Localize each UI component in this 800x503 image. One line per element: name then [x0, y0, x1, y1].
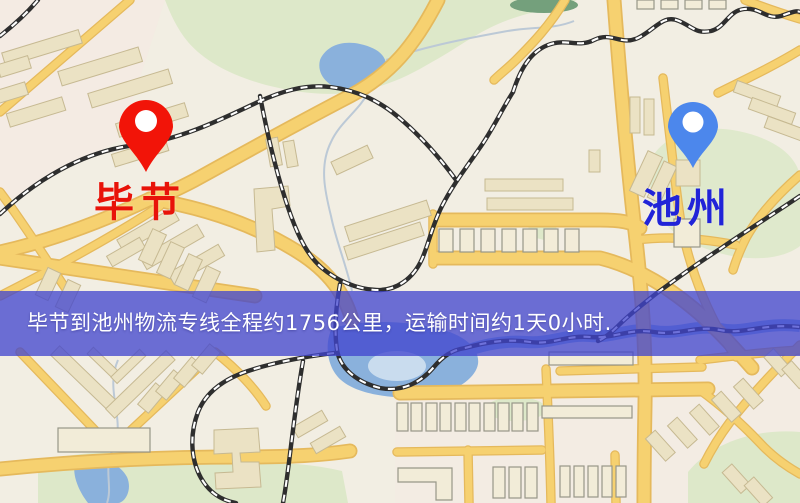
map-viewport: 毕节到池州物流专线全程约1756公里，运输时间约1天0小时. 毕节 池州 [0, 0, 800, 503]
origin-pin-hole [135, 110, 157, 132]
route-info-banner: 毕节到池州物流专线全程约1756公里，运输时间约1天0小时. [0, 291, 800, 356]
route-banner-text: 毕节到池州物流专线全程约1756公里，运输时间约1天0小时. [0, 291, 800, 356]
destination-city-label: 池州 [642, 176, 732, 234]
destination-pin-hole [683, 112, 704, 133]
origin-city-label: 毕节 [94, 170, 186, 228]
map-canvas[interactable] [0, 0, 800, 503]
